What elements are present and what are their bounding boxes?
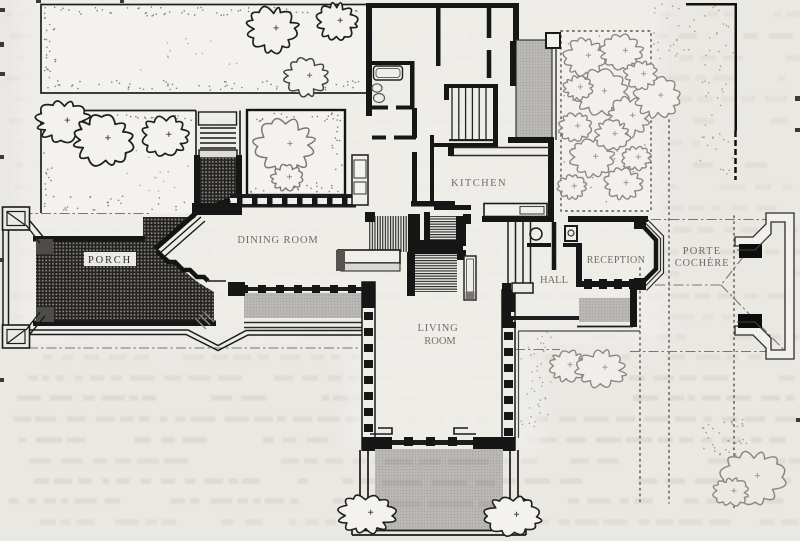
- svg-text:COCHÈRE: COCHÈRE: [675, 257, 730, 269]
- svg-text:KITCHEN: KITCHEN: [451, 178, 507, 189]
- svg-text:PORCH: PORCH: [88, 255, 132, 266]
- svg-text:LIVING: LIVING: [418, 323, 459, 334]
- svg-text:HALL: HALL: [540, 275, 568, 286]
- svg-text:DINING ROOM: DINING ROOM: [237, 235, 318, 246]
- svg-text:RECEPTION: RECEPTION: [587, 255, 646, 266]
- svg-text:PORTE: PORTE: [683, 246, 722, 257]
- svg-text:ROOM: ROOM: [424, 336, 456, 347]
